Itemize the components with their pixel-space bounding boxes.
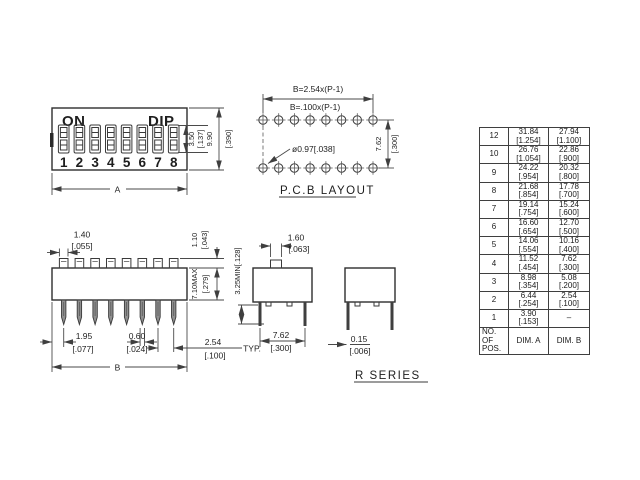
dim-actuator-w-in: [.055]	[71, 241, 92, 251]
dim-b-label: B	[115, 363, 121, 373]
dim-row-spacing-mm: 7.62	[374, 137, 383, 152]
pcb-hole	[366, 161, 380, 175]
pin	[77, 300, 81, 325]
end-view-right: 0.15 [.006]	[328, 268, 395, 356]
pcb-hole	[319, 113, 333, 127]
dim-slot-in: [.137]	[196, 130, 205, 149]
dim-row-spacing-in: [.300]	[390, 135, 399, 154]
series-label: R SERIES	[355, 370, 421, 382]
switch-number-2: 2	[76, 155, 84, 170]
dim-a-cell: 8.98[.354]	[509, 273, 549, 291]
table-row: 8 21.68[.854] 17.78[.700]	[480, 182, 590, 200]
dim-b-cell: –	[549, 309, 590, 327]
pin	[93, 300, 97, 325]
table-row: 2 6.44[.254] 2.54[.100]	[480, 291, 590, 309]
polarity-notch	[50, 133, 54, 147]
pcb-hole	[335, 161, 349, 175]
pcb-hole	[272, 161, 286, 175]
dip-switch-datasheet-drawing: ON DIP 1 2 3 4 5 6 7 8 A 3.50 [.137] 9	[0, 0, 640, 480]
pcb-hole	[351, 113, 365, 127]
dim-a-cell: 16.60[.654]	[509, 218, 549, 236]
dim-b-imperial: B=.100x(P-1)	[290, 102, 340, 112]
dim-b-cell: 10.16[.400]	[549, 237, 590, 255]
table-header-row: NO. OFPOS. DIM. A DIM. B	[480, 328, 590, 355]
actuator	[107, 259, 116, 269]
actuator	[91, 259, 100, 269]
dim-b-cell: 12.70[.500]	[549, 218, 590, 236]
pin	[140, 300, 144, 325]
pcb-hole	[303, 161, 317, 175]
pos-cell: 5	[480, 237, 509, 255]
dim-b-cell: 2.54[.100]	[549, 291, 590, 309]
dim-height-in: [.390]	[224, 130, 233, 149]
dim-slot-mm: 3.50	[187, 132, 196, 147]
dim-end-row-in: [.300]	[270, 343, 291, 353]
pcb-hole	[303, 113, 317, 127]
pcb-hole	[256, 161, 270, 175]
hole-diameter-callout: ø0.97[.038]	[292, 144, 335, 154]
dim-pin-thickness-mm: 0.15	[351, 334, 368, 344]
pcb-hole	[335, 113, 349, 127]
switch-number-3: 3	[91, 155, 99, 170]
dim-pitch-note: TYP.	[243, 344, 261, 354]
dim-pin-length: 3.25MIN[.128]	[233, 247, 242, 294]
dim-a-cell: 14.06[.554]	[509, 237, 549, 255]
pcb-hole	[288, 113, 302, 127]
header-dim-a: DIM. A	[509, 328, 549, 355]
dim-b-cell: 27.94[1.100]	[549, 128, 590, 146]
header-dim-b: DIM. B	[549, 328, 590, 355]
dim-pin-thickness-in: [.006]	[349, 346, 370, 356]
pcb-hole	[319, 161, 333, 175]
pcb-hole	[351, 161, 365, 175]
dim-a-cell: 11.52[.454]	[509, 255, 549, 273]
dim-b-cell: 7.62[.300]	[549, 255, 590, 273]
pin	[124, 300, 128, 325]
dim-a-label: A	[115, 185, 121, 195]
dim-b-metric: B=2.54x(P-1)	[293, 84, 343, 94]
dim-pin-w-mm: 0.60	[129, 331, 146, 341]
table-row: 10 26.76[1.054] 22.86[.900]	[480, 146, 590, 164]
dim-b-cell: 5.08[.200]	[549, 273, 590, 291]
side-view: 1.40 [.055] 1.10 [.043] 7.10MAX [.279] 1…	[40, 230, 261, 373]
actuator	[75, 259, 84, 269]
dim-a-cell: 19.14[.754]	[509, 200, 549, 218]
actuator	[59, 259, 68, 269]
dim-pitch-mm: 2.54	[205, 337, 222, 347]
dim-b-cell: 20.32[.800]	[549, 164, 590, 182]
dim-pitch-in: [.100]	[204, 351, 225, 361]
front-view: ON DIP 1 2 3 4 5 6 7 8 A 3.50 [.137] 9	[50, 108, 233, 195]
dim-a-cell: 3.90[.153]	[509, 309, 549, 327]
dim-a-cell: 21.68[.854]	[509, 182, 549, 200]
pos-cell: 8	[480, 182, 509, 200]
table-row: 5 14.06[.554] 10.16[.400]	[480, 237, 590, 255]
pin	[62, 300, 66, 325]
table-row: 12 31.84[1.254] 27.94[1.100]	[480, 128, 590, 146]
pos-cell: 3	[480, 273, 509, 291]
dim-end-actuator-in: [.063]	[288, 244, 309, 254]
actuator	[138, 259, 147, 269]
pcb-hole	[272, 113, 286, 127]
dim-pin-offset-in: [.077]	[72, 344, 93, 354]
actuator	[169, 259, 178, 269]
pin	[172, 300, 176, 325]
table-row: 7 19.14[.754] 15.24[.600]	[480, 200, 590, 218]
pos-cell: 12	[480, 128, 509, 146]
dim-b-cell: 22.86[.900]	[549, 146, 590, 164]
switch-number-1: 1	[60, 155, 68, 170]
pin	[259, 302, 262, 326]
switch-number-5: 5	[123, 155, 131, 170]
pos-cell: 4	[480, 255, 509, 273]
dim-a-cell: 26.76[1.054]	[509, 146, 549, 164]
pin	[156, 300, 160, 325]
pos-cell: 7	[480, 200, 509, 218]
pos-cell: 1	[480, 309, 509, 327]
dim-actuator-w-mm: 1.40	[74, 230, 91, 240]
dim-b-cell: 15.24[.600]	[549, 200, 590, 218]
dim-end-row-mm: 7.62	[273, 330, 290, 340]
dim-body-h-in: [.279]	[201, 275, 210, 294]
dim-actuator-h-mm: 1.10	[190, 233, 199, 248]
pos-cell: 9	[480, 164, 509, 182]
header-no-of-pos: NO. OFPOS.	[480, 328, 509, 355]
end-view-left: 1.60 [.063] 3.25MIN[.128] 7.62 [.300]	[233, 233, 312, 354]
pcb-layout-view: B=2.54x(P-1) B=.100x(P-1) ø0.97[.038] 7.…	[256, 84, 399, 197]
pin	[391, 302, 394, 330]
pcb-hole	[288, 161, 302, 175]
dim-actuator-h-in: [.043]	[200, 231, 209, 250]
switch-number-7: 7	[154, 155, 162, 170]
pin	[347, 302, 350, 330]
actuator	[122, 259, 131, 269]
dim-pin-offset-mm: 1.95	[76, 331, 93, 341]
dim-a-cell: 31.84[1.254]	[509, 128, 549, 146]
table-row: 3 8.98[.354] 5.08[.200]	[480, 273, 590, 291]
pcb-hole	[256, 113, 270, 127]
dim-end-actuator-mm: 1.60	[288, 233, 305, 243]
pos-cell: 6	[480, 218, 509, 236]
dim-body-h-mm: 7.10MAX	[190, 269, 199, 300]
table-row: 1 3.90[.153] –	[480, 309, 590, 327]
actuator	[154, 259, 163, 269]
pos-cell: 10	[480, 146, 509, 164]
table-row: 6 16.60[.654] 12.70[.500]	[480, 218, 590, 236]
pcb-hole	[366, 113, 380, 127]
pos-cell: 2	[480, 291, 509, 309]
table-row: 4 11.52[.454] 7.62[.300]	[480, 255, 590, 273]
dim-a-cell: 6.44[.254]	[509, 291, 549, 309]
switch-number-8: 8	[170, 155, 178, 170]
pin	[304, 302, 307, 326]
dim-height-mm: 9.90	[205, 132, 214, 147]
table-row: 9 24.22[.954] 20.32[.800]	[480, 164, 590, 182]
pin	[109, 300, 113, 325]
dim-b-cell: 17.78[.700]	[549, 182, 590, 200]
dim-pin-w-in: [.024]	[126, 344, 147, 354]
switch-number-6: 6	[139, 155, 147, 170]
dim-a-cell: 24.22[.954]	[509, 164, 549, 182]
switch-number-4: 4	[107, 155, 115, 170]
pcb-layout-title: P.C.B LAYOUT	[280, 185, 375, 197]
dimension-table: 12 31.84[1.254] 27.94[1.100] 10 26.76[1.…	[479, 127, 590, 355]
